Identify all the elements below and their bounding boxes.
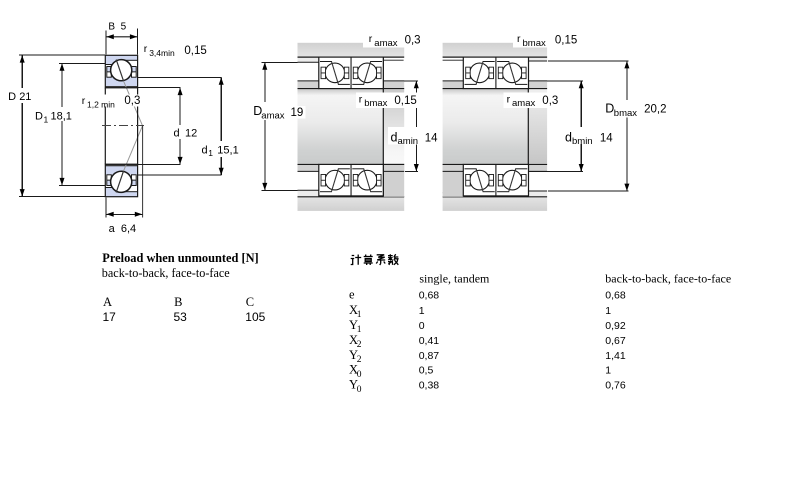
svg-text:53: 53 bbox=[174, 310, 188, 324]
svg-text:15,1: 15,1 bbox=[217, 144, 238, 156]
svg-text:B 5: B 5 bbox=[108, 22, 126, 33]
svg-text:d: d bbox=[565, 131, 572, 145]
svg-text:A: A bbox=[103, 295, 112, 309]
svg-text:0,67: 0,67 bbox=[605, 335, 626, 347]
svg-text:1: 1 bbox=[605, 365, 611, 377]
svg-text:amax: amax bbox=[374, 38, 397, 49]
svg-text:0,38: 0,38 bbox=[419, 380, 440, 392]
svg-text:r: r bbox=[144, 43, 148, 55]
svg-text:12: 12 bbox=[185, 128, 197, 140]
svg-text:21: 21 bbox=[19, 91, 31, 103]
svg-text:amax: amax bbox=[512, 98, 535, 109]
svg-text:d: d bbox=[174, 128, 180, 140]
svg-text:C: C bbox=[246, 295, 254, 309]
svg-text:r: r bbox=[507, 94, 511, 106]
svg-text:0,15: 0,15 bbox=[184, 45, 206, 57]
svg-text:1: 1 bbox=[44, 115, 49, 125]
svg-text:amin: amin bbox=[398, 136, 419, 147]
svg-text:a 6,4: a 6,4 bbox=[109, 223, 137, 235]
svg-text:19: 19 bbox=[291, 107, 304, 119]
svg-text:0,68: 0,68 bbox=[419, 289, 440, 301]
svg-text:bmax: bmax bbox=[614, 108, 637, 119]
svg-text:d: d bbox=[202, 144, 208, 156]
svg-text:d: d bbox=[391, 131, 398, 145]
svg-text:20,2: 20,2 bbox=[644, 104, 666, 116]
svg-text:18,1: 18,1 bbox=[51, 111, 72, 123]
svg-text:0,76: 0,76 bbox=[605, 380, 626, 392]
svg-text:D: D bbox=[35, 111, 43, 123]
svg-text:Preload when unmounted [N]: Preload when unmounted [N] bbox=[102, 251, 258, 265]
svg-text:amax: amax bbox=[261, 111, 284, 122]
svg-text:0,3: 0,3 bbox=[405, 35, 421, 47]
svg-text:17: 17 bbox=[103, 310, 117, 324]
svg-text:back-to-back, face-to-face: back-to-back, face-to-face bbox=[605, 272, 731, 286]
svg-text:0,5: 0,5 bbox=[419, 365, 434, 377]
svg-text:1: 1 bbox=[208, 148, 213, 158]
svg-text:105: 105 bbox=[245, 310, 265, 324]
svg-text:single, tandem: single, tandem bbox=[419, 272, 490, 286]
svg-text:r: r bbox=[359, 94, 363, 106]
svg-text:1: 1 bbox=[605, 305, 611, 317]
svg-text:0,41: 0,41 bbox=[419, 335, 440, 347]
svg-text:3,4min: 3,4min bbox=[149, 48, 175, 58]
svg-text:0,15: 0,15 bbox=[394, 95, 416, 107]
svg-text:B: B bbox=[174, 295, 182, 309]
svg-text:0,92: 0,92 bbox=[605, 320, 626, 332]
svg-text:bmax: bmax bbox=[364, 98, 387, 109]
svg-text:1,2 min: 1,2 min bbox=[87, 100, 115, 110]
svg-text:r: r bbox=[517, 33, 521, 45]
svg-text:0,87: 0,87 bbox=[419, 350, 440, 362]
svg-text:bmax: bmax bbox=[523, 38, 546, 49]
svg-text:0: 0 bbox=[419, 320, 425, 332]
svg-text:0,15: 0,15 bbox=[555, 35, 577, 47]
svg-text:D: D bbox=[8, 91, 16, 103]
svg-text:0,3: 0,3 bbox=[124, 95, 140, 107]
svg-text:bmin: bmin bbox=[572, 136, 593, 147]
svg-text:1,41: 1,41 bbox=[605, 350, 626, 362]
svg-text:e: e bbox=[349, 287, 355, 301]
svg-text:14: 14 bbox=[425, 133, 438, 145]
svg-text:0,68: 0,68 bbox=[605, 289, 626, 301]
svg-text:r: r bbox=[82, 95, 86, 107]
svg-text:14: 14 bbox=[600, 133, 613, 145]
svg-text:1: 1 bbox=[419, 305, 425, 317]
svg-text:r: r bbox=[369, 33, 373, 45]
svg-text:0,3: 0,3 bbox=[542, 95, 558, 107]
svg-text:0: 0 bbox=[357, 385, 362, 395]
svg-text:back-to-back, face-to-face: back-to-back, face-to-face bbox=[102, 266, 230, 280]
